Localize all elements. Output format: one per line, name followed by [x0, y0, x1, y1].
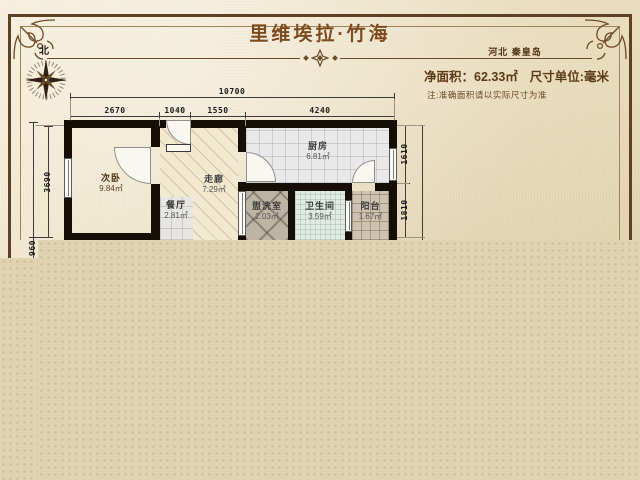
divider-dot: [332, 55, 338, 61]
room-label-corridor: 走廊 7.29㎡: [186, 174, 242, 194]
compass-north-label: 北: [39, 42, 49, 57]
room-label-balcony: 阳台 1.67㎡: [350, 201, 391, 221]
ext-line: [397, 237, 425, 238]
dim-line-total: [70, 97, 395, 98]
wall: [246, 183, 352, 191]
wall: [191, 120, 397, 128]
divider-ornament-icon: [311, 48, 329, 68]
dim-segment-1: 2670: [85, 106, 145, 115]
bedroom-window: [64, 158, 72, 198]
dim-segment-4: 4240: [290, 106, 350, 115]
dim-right-1610: 1610: [400, 139, 410, 169]
dim-right-1810: 1810: [400, 195, 410, 225]
kitchen-window: [389, 148, 397, 181]
blank-area: [38, 240, 640, 480]
dim-line-right-outer: [422, 125, 423, 240]
dim-tick: [29, 122, 38, 123]
room-label-bedroom: 次卧 9.84㎡: [82, 173, 140, 193]
divider-right: [340, 58, 592, 59]
entry-door-threshold: [166, 144, 191, 152]
net-area-value: 净面积：62.33㎡: [424, 70, 518, 84]
room-label-bathroom: 卫生间 3.59㎡: [293, 201, 347, 221]
dim-total-width: 10700: [202, 87, 262, 96]
room-label-washroom: 盥洗室 2.03㎡: [243, 201, 291, 221]
frame-top: [8, 14, 632, 17]
room-label-dining: 餐厅 2.81㎡: [157, 200, 195, 220]
dim-left-3690: 3690: [43, 167, 53, 197]
wall: [64, 233, 160, 240]
wall: [64, 120, 72, 158]
dim-line-segments: [70, 116, 395, 117]
ext-line: [397, 183, 409, 184]
dim-segment-3: 1550: [188, 106, 248, 115]
dim-tick: [44, 126, 53, 127]
ext-line: [397, 125, 425, 126]
location-label: 河北 秦皇岛: [455, 45, 575, 58]
divider-left: [47, 58, 300, 59]
frame-right: [629, 14, 632, 240]
net-area-line: 净面积：62.33㎡尺寸单位:毫米: [424, 66, 624, 85]
blank-area-left: [0, 258, 38, 480]
wall: [345, 232, 352, 240]
divider-dot: [303, 55, 309, 61]
room-label-kitchen: 厨房 6.81㎡: [286, 141, 350, 161]
unit-label: 尺寸单位:毫米: [530, 70, 609, 84]
ext-line: [190, 118, 191, 126]
page-title: 里维埃拉·竹海: [0, 19, 640, 46]
wall: [345, 191, 352, 200]
ext-line: [36, 125, 64, 126]
disclaimer-note: 注:准确面积请以实际尺寸为准: [427, 89, 547, 101]
wall: [238, 128, 246, 152]
ext-line: [245, 118, 246, 126]
screen: 里维埃拉·竹海 河北 秦皇岛 净面积：62.33㎡尺寸单位:毫米 注:准确面积请…: [0, 0, 640, 480]
ext-line: [159, 118, 160, 126]
compass-rose-icon: [24, 58, 68, 102]
ext-line: [70, 99, 71, 120]
ext-line: [394, 99, 395, 120]
